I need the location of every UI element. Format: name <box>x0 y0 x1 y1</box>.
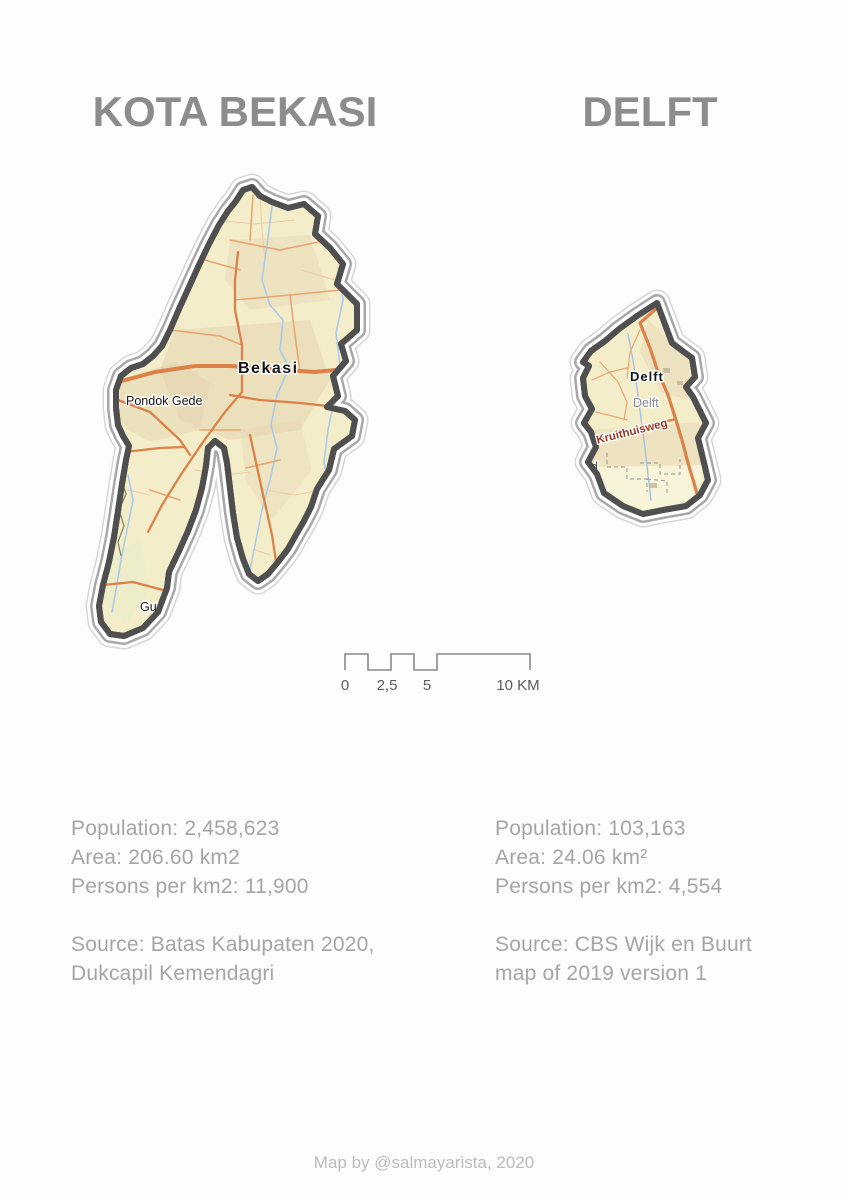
scale-tick-25: 2,5 <box>377 677 398 694</box>
scale-bar-line <box>345 654 530 670</box>
scale-tick-5: 5 <box>423 677 431 694</box>
delft-population: Population: 103,163 <box>495 814 752 843</box>
scale-bar: 0 2,5 5 10 KM <box>330 640 560 700</box>
bekasi-density: Persons per km2: 11,900 <box>71 872 375 901</box>
bekasi-source-line2: Dukcapil Kemendagri <box>71 959 375 988</box>
delft-source-line2: map of 2019 version 1 <box>495 959 752 988</box>
delft-source-line1: Source: CBS Wijk en Buurt <box>495 930 752 959</box>
bekasi-city-label: Bekasi <box>238 360 299 377</box>
delft-area: Area: 24.06 km² <box>495 843 752 872</box>
bekasi-stats: Population: 2,458,623 Area: 206.60 km2 P… <box>71 814 375 988</box>
bekasi-source: Source: Batas Kabupaten 2020, Dukcapil K… <box>71 930 375 988</box>
poster-canvas: KOTA BEKASI DELFT <box>0 0 848 1200</box>
page-title-delft: DELFT <box>535 88 765 136</box>
map-credit: Map by @salmayarista, 2020 <box>0 1153 848 1173</box>
bekasi-source-line1: Source: Batas Kabupaten 2020, <box>71 930 375 959</box>
delft-map: d Delft Delft Kruithuisweg <box>555 275 755 535</box>
bekasi-area: Area: 206.60 km2 <box>71 843 375 872</box>
delft-density: Persons per km2: 4,554 <box>495 872 752 901</box>
bekasi-label-pondok-gede: Pondok Gede <box>126 394 202 408</box>
bekasi-population: Population: 2,458,623 <box>71 814 375 843</box>
scale-tick-10km: 10 KM <box>496 677 539 694</box>
bekasi-map: Gunu Bekasi Pondok Gede <box>55 160 405 670</box>
delft-city-label: Delft <box>630 369 664 384</box>
delft-source: Source: CBS Wijk en Buurt map of 2019 ve… <box>495 930 752 988</box>
scale-tick-0: 0 <box>341 677 349 694</box>
page-title-bekasi: KOTA BEKASI <box>40 88 430 136</box>
delft-stats: Population: 103,163 Area: 24.06 km² Pers… <box>495 814 752 988</box>
delft-area-label: Delft <box>633 396 659 410</box>
